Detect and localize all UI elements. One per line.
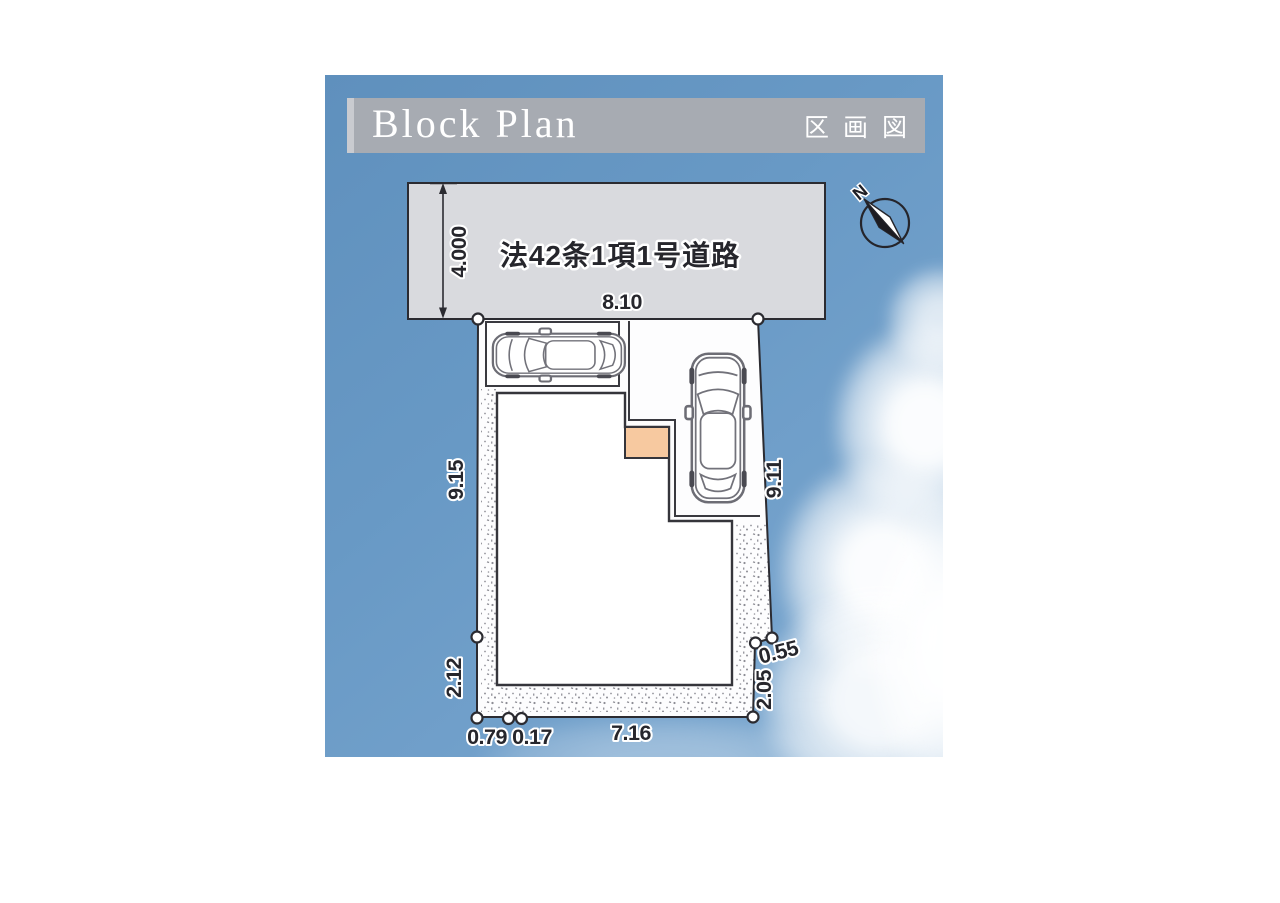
dim-bottom-mid: 0.17: [512, 725, 552, 749]
block-plan-drawing: 法42条1項1号道路 4.000: [325, 75, 943, 757]
section-header-bar: Block Plan 区画図: [347, 98, 925, 153]
dim-left-lower: 2.12: [442, 658, 466, 698]
car-top-view-horizontal: [493, 329, 625, 382]
dim-bottom-main: 7.16: [611, 721, 651, 745]
road-label: 法42条1項1号道路: [500, 239, 740, 271]
gravel-strip-bottom: [481, 686, 753, 712]
entrance-porch: [625, 427, 669, 458]
dim-right-upper: 9.11: [762, 459, 786, 498]
dim-road-width: 4.000: [447, 226, 471, 278]
car-top-view-vertical: [686, 354, 751, 503]
sky-background-panel: 法42条1項1号道路 4.000: [325, 75, 943, 757]
page-subtitle-japanese: 区画図: [804, 108, 921, 144]
gravel-strip-left: [481, 389, 497, 712]
north-label: N: [849, 181, 872, 205]
north-compass: N: [849, 181, 909, 247]
page-title: Block Plan: [372, 100, 579, 147]
dim-right-lower: 2.05: [752, 670, 776, 710]
header-accent-stripe: [347, 98, 354, 153]
dim-bottom-left: 0.79: [467, 725, 507, 749]
dim-left-upper: 9.15: [444, 460, 468, 500]
dim-frontage: 8.10: [602, 290, 642, 314]
